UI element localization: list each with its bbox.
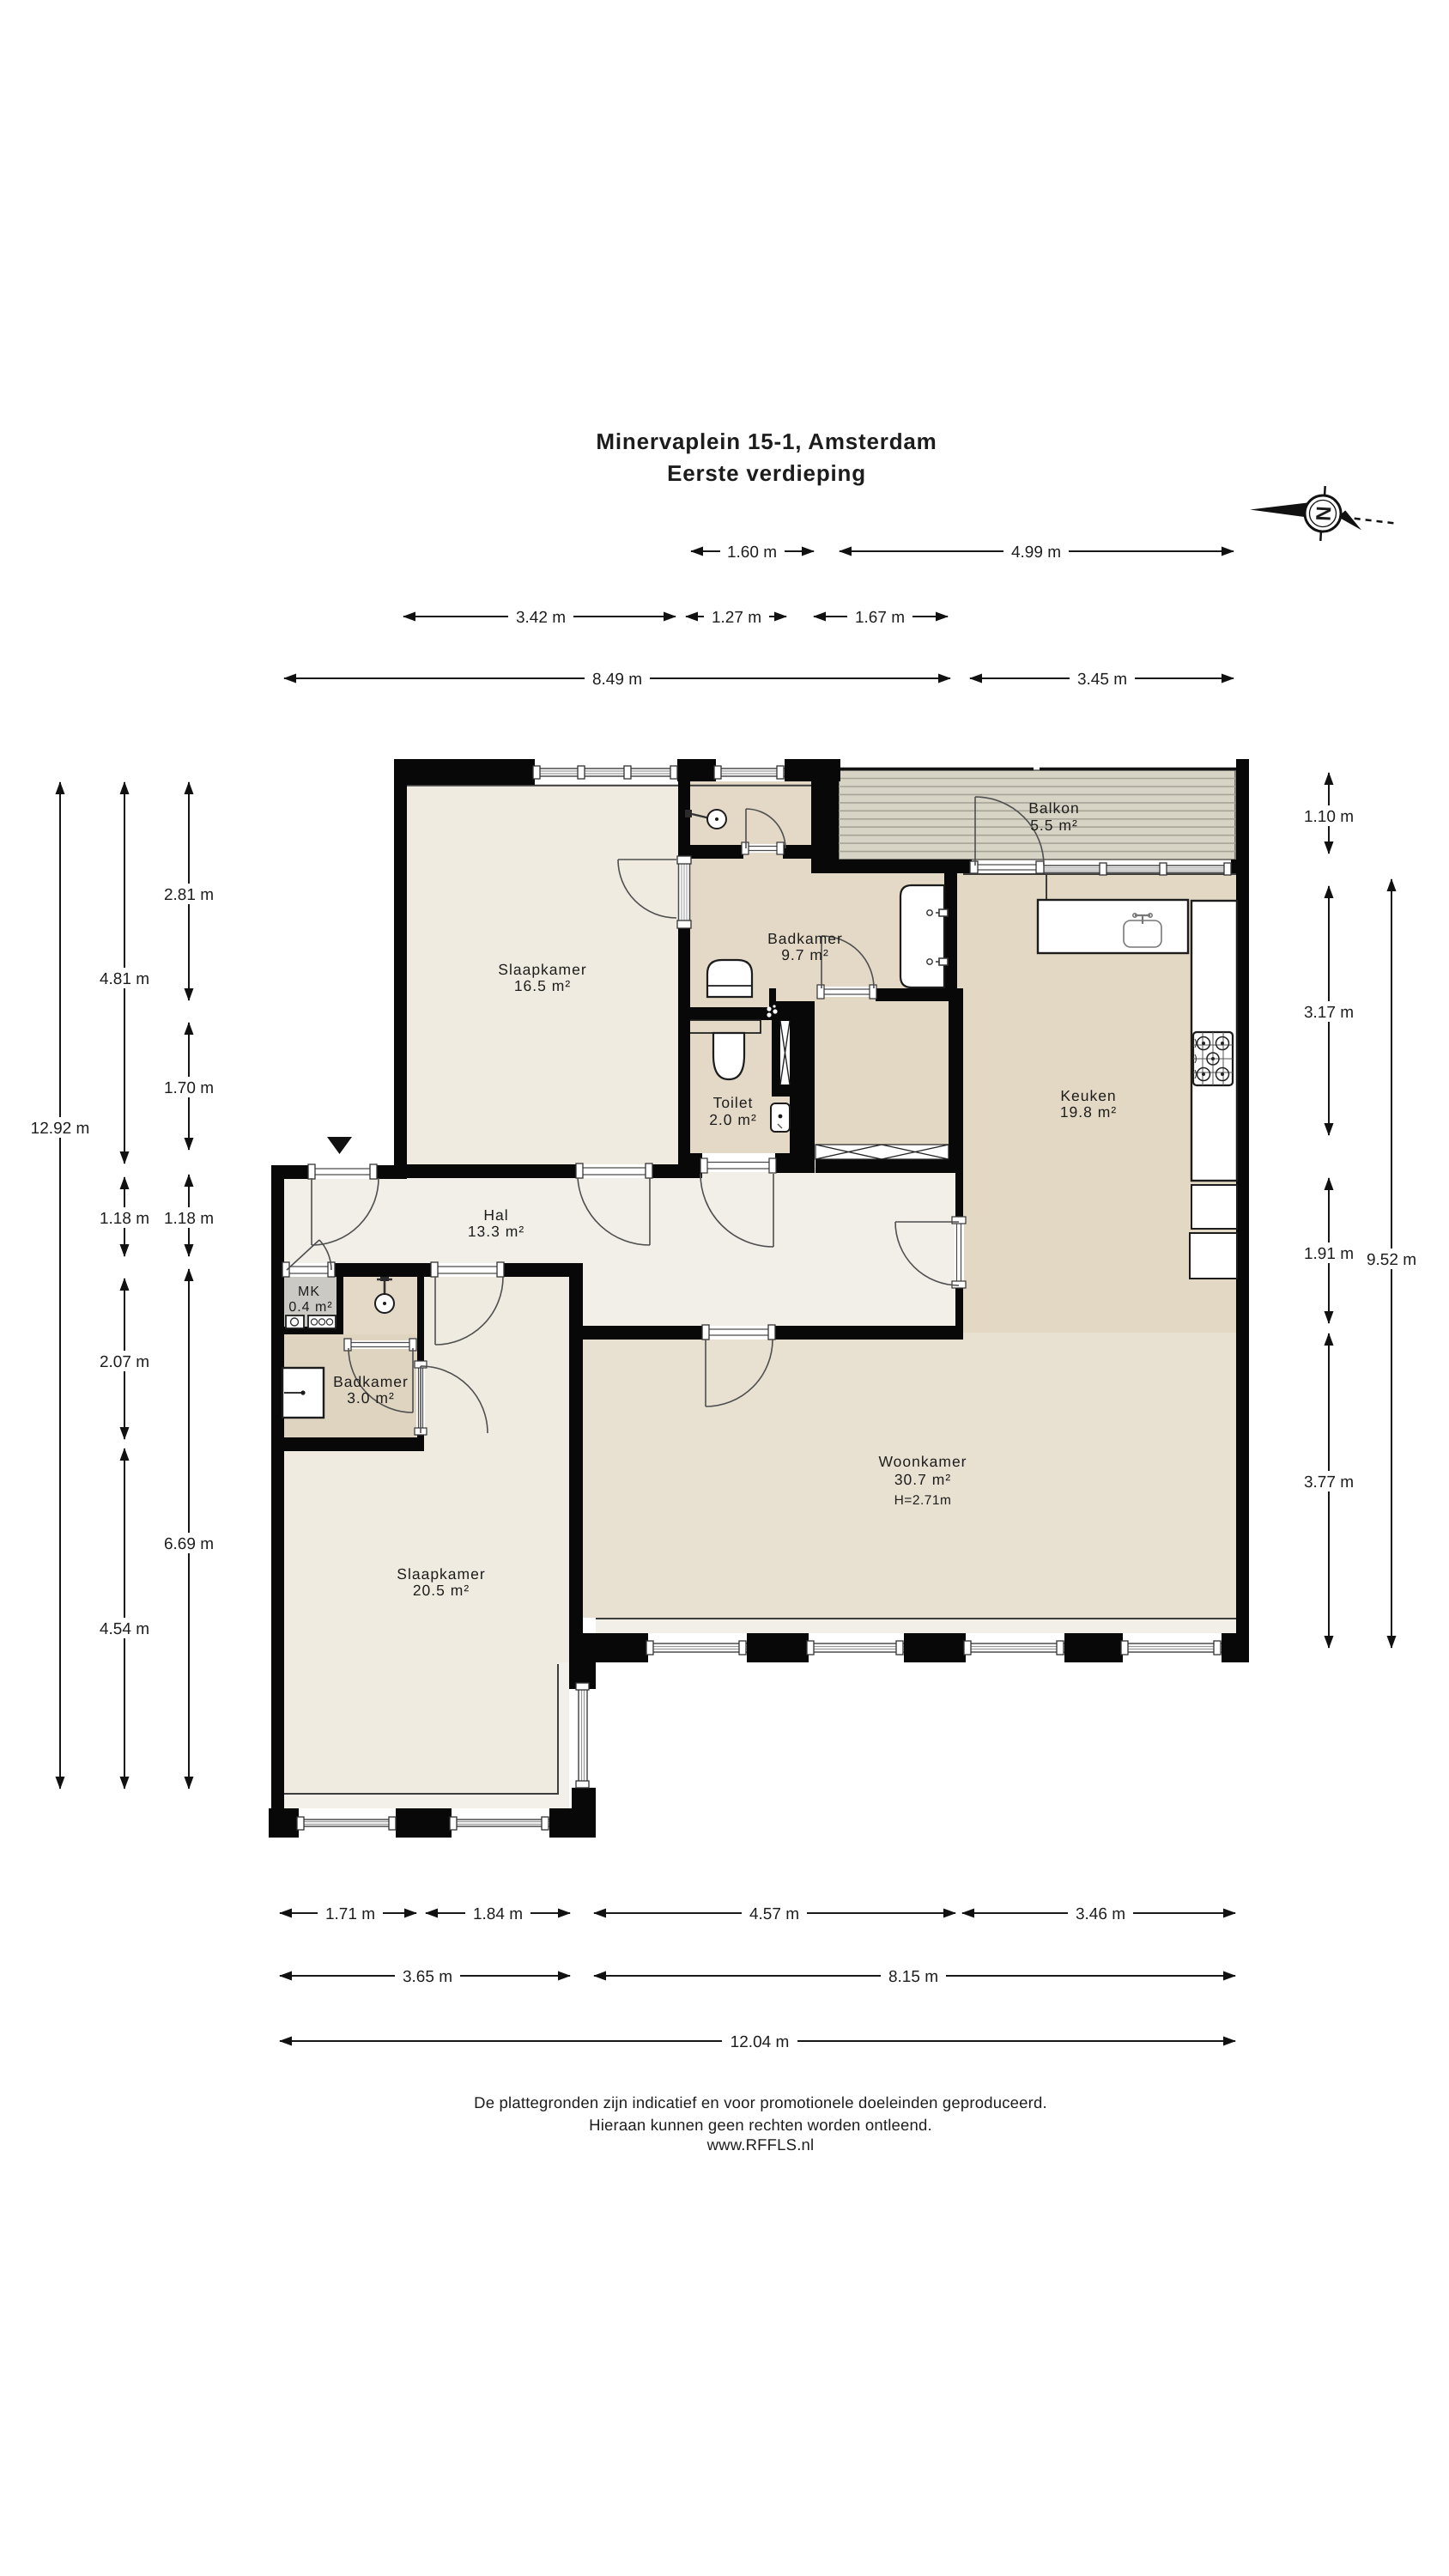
- svg-text:Toilet: Toilet: [713, 1094, 754, 1111]
- svg-text:3.0 m²: 3.0 m²: [347, 1389, 395, 1406]
- svg-text:1.91 m: 1.91 m: [1304, 1245, 1354, 1263]
- svg-text:1.71 m: 1.71 m: [325, 1905, 375, 1923]
- svg-text:4.57 m: 4.57 m: [749, 1905, 799, 1923]
- svg-text:2.81 m: 2.81 m: [164, 886, 214, 904]
- svg-text:Badkamer: Badkamer: [333, 1373, 409, 1390]
- svg-text:20.5 m²: 20.5 m²: [413, 1582, 470, 1599]
- svg-text:12.92 m: 12.92 m: [31, 1120, 90, 1138]
- svg-text:4.54 m: 4.54 m: [100, 1620, 149, 1638]
- svg-text:8.49 m: 8.49 m: [592, 671, 642, 689]
- svg-text:1.84 m: 1.84 m: [473, 1905, 523, 1923]
- svg-text:De plattegronden zijn indicati: De plattegronden zijn indicatief en voor…: [474, 2093, 1047, 2111]
- svg-text:Slaapkamer: Slaapkamer: [397, 1565, 485, 1583]
- svg-text:3.65 m: 3.65 m: [403, 1968, 452, 1986]
- svg-text:Hieraan kunnen geen rechten wo: Hieraan kunnen geen rechten worden ontle…: [589, 2116, 932, 2134]
- svg-text:3.77 m: 3.77 m: [1304, 1473, 1354, 1492]
- svg-text:0.4 m²: 0.4 m²: [288, 1300, 332, 1315]
- svg-text:2.0 m²: 2.0 m²: [709, 1111, 757, 1128]
- svg-text:8.15 m: 8.15 m: [888, 1968, 938, 1986]
- svg-text:3.46 m: 3.46 m: [1076, 1905, 1125, 1923]
- svg-text:12.04 m: 12.04 m: [731, 2033, 790, 2051]
- svg-text:30.7 m²: 30.7 m²: [894, 1471, 951, 1488]
- svg-text:www.RFFLS.nl: www.RFFLS.nl: [706, 2136, 815, 2154]
- svg-text:9.52 m: 9.52 m: [1367, 1251, 1416, 1269]
- svg-text:4.99 m: 4.99 m: [1011, 544, 1061, 562]
- svg-text:9.7 m²: 9.7 m²: [781, 946, 829, 963]
- svg-text:1.70 m: 1.70 m: [164, 1079, 214, 1097]
- svg-text:Eerste verdieping: Eerste verdieping: [667, 460, 866, 486]
- svg-text:13.3 m²: 13.3 m²: [468, 1223, 524, 1240]
- svg-text:Balkon: Balkon: [1028, 799, 1080, 817]
- svg-text:1.60 m: 1.60 m: [727, 544, 777, 562]
- svg-text:1.10 m: 1.10 m: [1304, 808, 1354, 826]
- svg-text:4.81 m: 4.81 m: [100, 970, 149, 988]
- svg-text:Hal: Hal: [483, 1206, 508, 1224]
- svg-text:1.18 m: 1.18 m: [164, 1210, 214, 1228]
- svg-text:3.17 m: 3.17 m: [1304, 1004, 1354, 1022]
- svg-text:Keuken: Keuken: [1060, 1087, 1116, 1104]
- svg-text:16.5 m²: 16.5 m²: [514, 977, 571, 994]
- svg-text:6.69 m: 6.69 m: [164, 1535, 214, 1553]
- svg-text:Minervaplein 15-1, Amsterdam: Minervaplein 15-1, Amsterdam: [596, 428, 937, 454]
- svg-text:3.42 m: 3.42 m: [516, 609, 566, 627]
- svg-text:19.8 m²: 19.8 m²: [1060, 1103, 1117, 1121]
- svg-text:MK: MK: [298, 1285, 320, 1299]
- svg-text:1.18 m: 1.18 m: [100, 1210, 149, 1228]
- svg-text:5.5 m²: 5.5 m²: [1030, 817, 1078, 834]
- svg-text:Slaapkamer: Slaapkamer: [498, 961, 586, 978]
- svg-text:2.07 m: 2.07 m: [100, 1353, 149, 1371]
- svg-text:Woonkamer: Woonkamer: [878, 1453, 967, 1470]
- svg-text:1.27 m: 1.27 m: [712, 609, 761, 627]
- svg-text:3.45 m: 3.45 m: [1077, 671, 1127, 689]
- svg-text:N: N: [1311, 506, 1335, 522]
- svg-text:Badkamer: Badkamer: [767, 930, 843, 947]
- svg-text:H=2.71m: H=2.71m: [894, 1493, 952, 1508]
- svg-text:1.67 m: 1.67 m: [855, 609, 905, 627]
